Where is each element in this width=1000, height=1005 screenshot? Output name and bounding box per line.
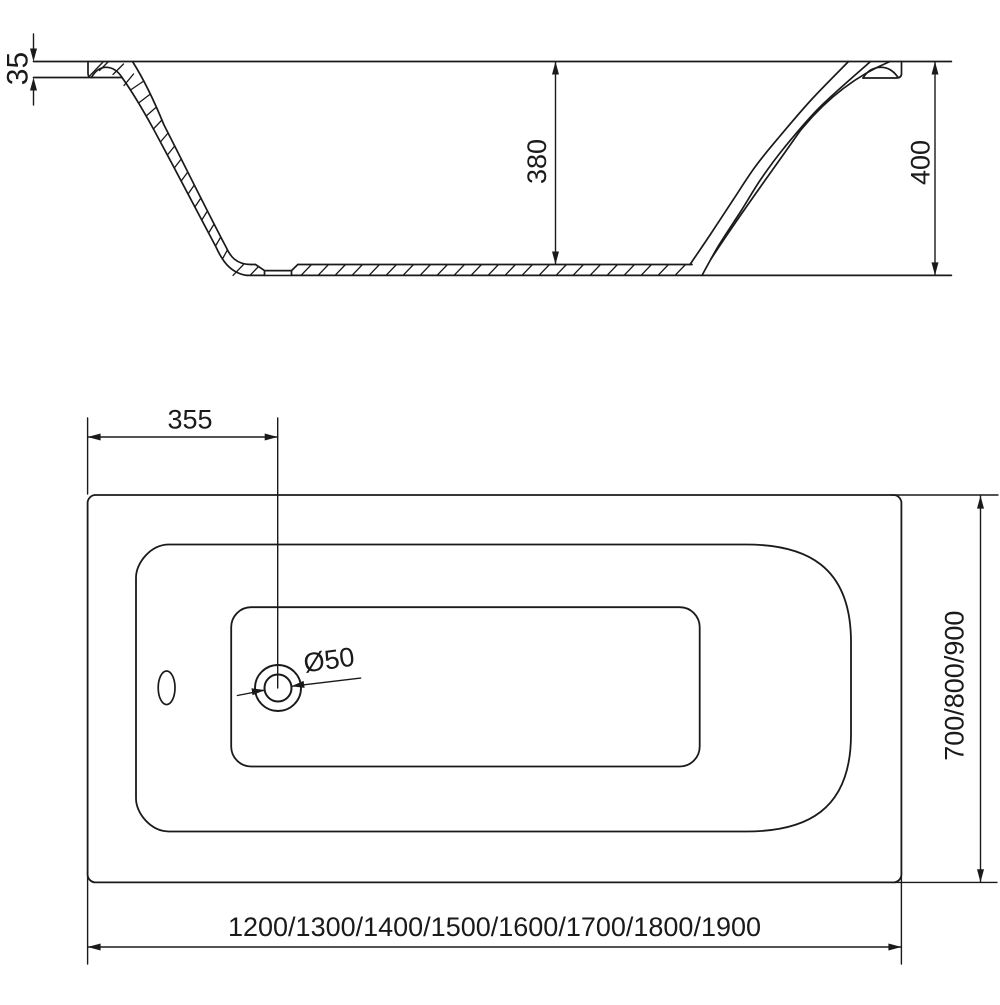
svg-text:380: 380 xyxy=(522,139,552,184)
svg-text:1200/1300/1400/1500/1600/1700/: 1200/1300/1400/1500/1600/1700/1800/1900 xyxy=(228,912,761,942)
svg-text:400: 400 xyxy=(906,140,936,185)
svg-text:355: 355 xyxy=(167,405,212,435)
svg-text:35: 35 xyxy=(2,52,35,85)
svg-text:700/800/900: 700/800/900 xyxy=(940,611,970,761)
